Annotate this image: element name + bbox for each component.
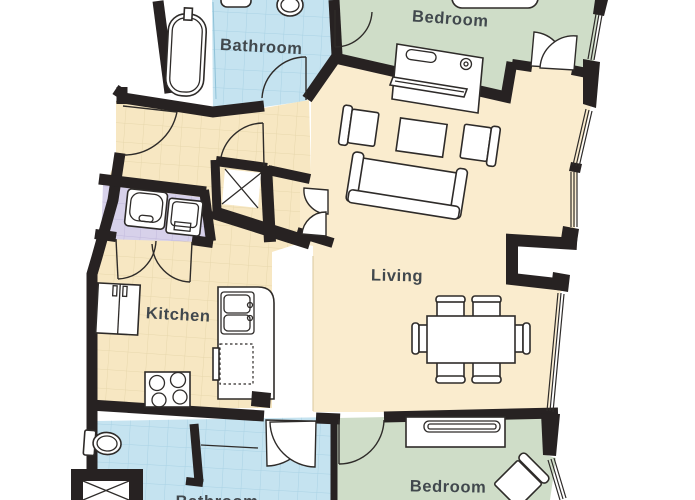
floor-plan-canvas: Bathroom Bedroom Living Kitchen Bedroom …	[0, 0, 695, 500]
wall-chunk-topright	[593, 0, 608, 16]
wall-counter-end	[251, 391, 271, 408]
bathroom-bottom-doors	[266, 420, 316, 467]
bathroom-bottom-label: Bathroom	[176, 493, 259, 500]
kitchen-label: Kitchen	[145, 304, 211, 325]
bathtub	[165, 7, 208, 97]
wall-chunk-right1	[583, 59, 600, 108]
wall-vanity-stub-right	[192, 240, 213, 243]
wall-toilet-partition-end	[186, 481, 203, 483]
wall-closet-stub-left	[512, 64, 532, 67]
living-label: Living	[371, 267, 423, 286]
counter-handle	[213, 348, 219, 380]
bed	[452, 0, 538, 8]
wall-closet-left	[215, 160, 217, 211]
coffee-table	[396, 118, 447, 157]
wall-bedroom2-right	[541, 413, 560, 456]
wall-closet-right	[266, 166, 270, 242]
kitchen-walkway	[272, 252, 313, 412]
dresser	[406, 417, 505, 447]
wall-notch-stub	[551, 272, 570, 292]
wall-vanity-stub-left	[95, 234, 116, 237]
wall-vanity-right	[204, 190, 211, 241]
wall-bath2-top-mid	[316, 418, 340, 419]
bedroom-bottom-label: Bedroom	[410, 477, 487, 496]
refrigerator	[96, 283, 141, 335]
armchair-left	[338, 105, 379, 150]
toilet-top-icon	[221, 0, 251, 7]
wall-toilet-partition	[194, 424, 199, 482]
kitchen-counter	[213, 287, 274, 399]
floor-plan: Bathroom Bedroom Living Kitchen Bedroom …	[0, 0, 695, 500]
wall-closet-top	[216, 161, 267, 168]
stove	[145, 372, 190, 407]
dining-table	[427, 316, 515, 363]
